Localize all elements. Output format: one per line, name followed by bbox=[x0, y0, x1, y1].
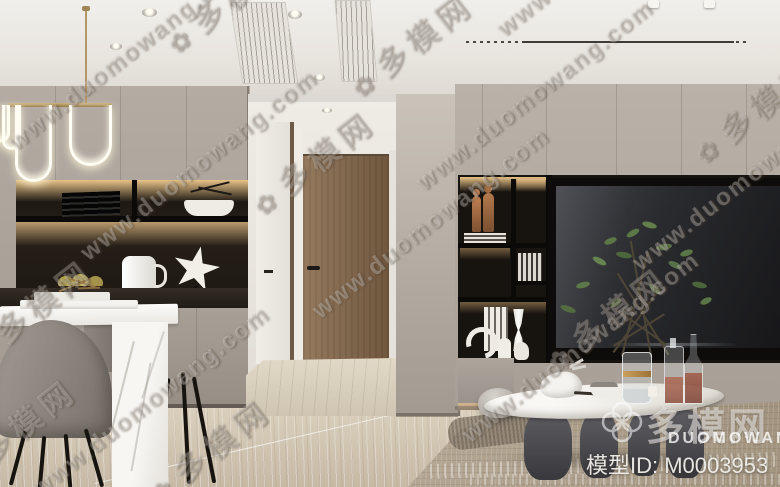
ac-vent-right bbox=[334, 0, 377, 82]
brand-latin-name: DUOMOWANG bbox=[668, 430, 780, 448]
shelf-books bbox=[518, 253, 542, 281]
figurine-head bbox=[473, 189, 480, 196]
book-stack-base bbox=[464, 233, 506, 243]
figurine-head bbox=[484, 185, 492, 193]
tv-niche bbox=[458, 175, 780, 363]
pendant-cord bbox=[85, 10, 87, 105]
cabinet-seam bbox=[546, 84, 547, 176]
niche-shelf bbox=[516, 281, 548, 285]
black-books-stack bbox=[62, 191, 120, 217]
bronze-figurine bbox=[472, 196, 481, 232]
brand-knot-flower-icon bbox=[598, 398, 646, 446]
niche-divider bbox=[132, 180, 137, 216]
island-book-stack bbox=[34, 292, 110, 301]
divider-wall bbox=[396, 94, 460, 416]
wood-door bbox=[303, 154, 389, 368]
kettle-handle bbox=[154, 264, 167, 288]
downlight bbox=[314, 74, 325, 81]
model-id-label: 模型ID: M0003953 bbox=[586, 448, 768, 480]
bronze-figurine bbox=[483, 193, 494, 232]
hallway-wall-strip bbox=[294, 128, 303, 366]
white-door bbox=[256, 122, 294, 364]
ceiling-slot-line bbox=[522, 41, 734, 43]
cabinet-seam bbox=[55, 86, 56, 180]
cabinet-seam bbox=[616, 84, 617, 176]
pendant-canopy bbox=[82, 6, 90, 11]
pendant-light-loop bbox=[15, 105, 52, 182]
decor-bowl bbox=[184, 200, 234, 216]
cabinet-seam bbox=[120, 86, 121, 180]
ceiling-spot-cylinder bbox=[648, 0, 659, 8]
console-vase bbox=[498, 338, 511, 360]
led-strip-glow bbox=[517, 179, 545, 191]
led-strip-glow bbox=[460, 248, 510, 260]
ceiling-spot-cylinder bbox=[704, 0, 715, 8]
door-handle bbox=[264, 270, 273, 273]
table-leg bbox=[524, 410, 572, 480]
downlight bbox=[110, 43, 122, 50]
cabinet-seam bbox=[681, 84, 682, 176]
cabinet-seam bbox=[746, 84, 747, 176]
decanter-stopper bbox=[670, 338, 676, 348]
island-book-stack bbox=[20, 300, 138, 309]
vase-gold-band bbox=[623, 371, 651, 377]
door-handle bbox=[307, 266, 320, 270]
console-vase bbox=[514, 342, 529, 360]
downlight bbox=[142, 8, 157, 17]
led-strip-glow bbox=[16, 222, 248, 246]
living-room-render: www.duomowang.com ✿多模网 ✿多模网 www.duomowan… bbox=[0, 0, 780, 487]
cabinet-seam bbox=[482, 84, 483, 176]
hallway-downlight bbox=[322, 108, 332, 113]
cabinet-seam bbox=[186, 86, 187, 180]
pendant-light-loop bbox=[69, 105, 112, 166]
left-display-niche bbox=[16, 180, 248, 302]
ceiling-slot-dots bbox=[466, 41, 520, 43]
ceiling-slot-dots bbox=[736, 41, 750, 43]
divider-wall-shadow bbox=[396, 413, 458, 417]
downlight bbox=[288, 10, 302, 19]
